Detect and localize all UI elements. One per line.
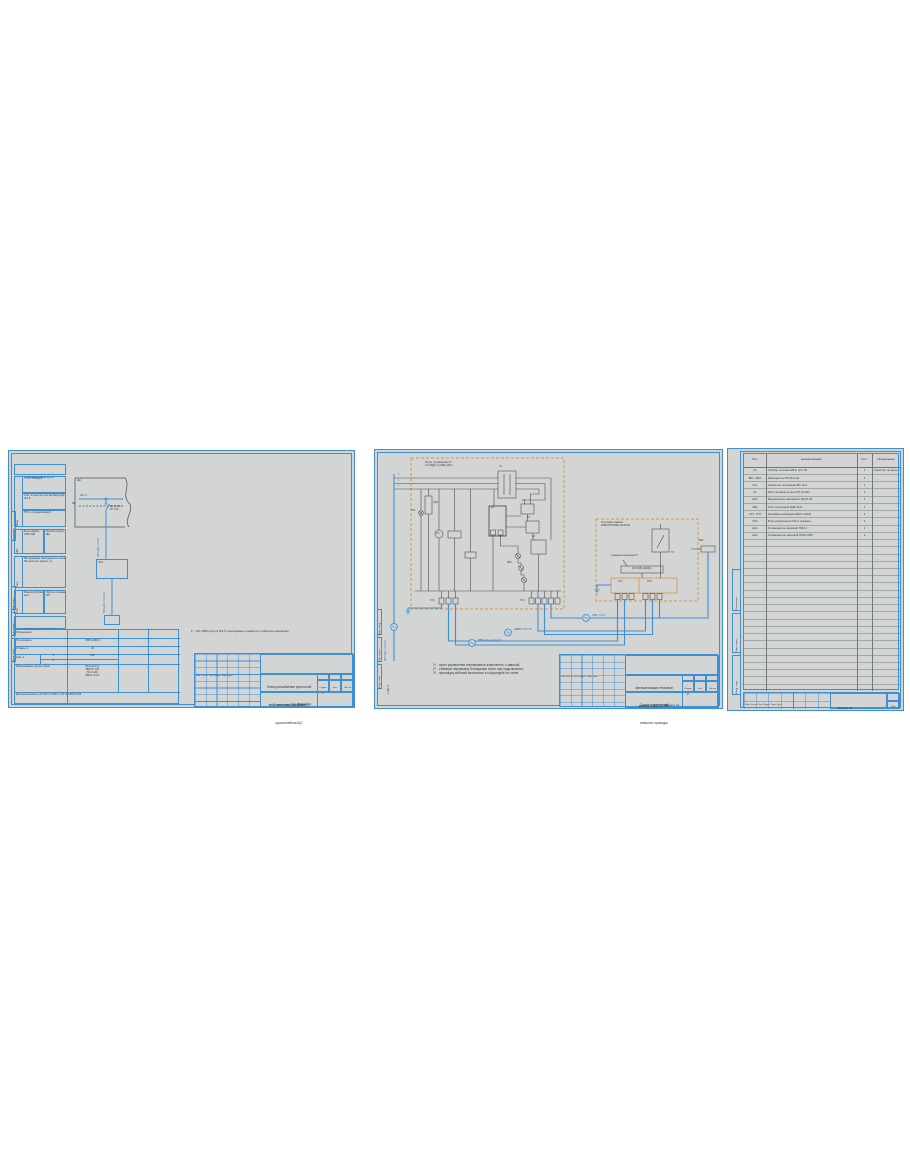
sheet-wiring-connections: Взам. инв. № Подп. и дата Инв. № подл. — [374, 449, 723, 709]
title-block-top-cell — [260, 654, 354, 674]
stack-row1-cell: Учёт эл.энергии счётчик Меркурий 201.5 — [22, 493, 66, 510]
power-lines — [79, 498, 123, 615]
stack-row2-cell: Реле напряж. УЗМ-51М — [22, 529, 44, 554]
parts-row: QF1Выключатель автоматич. ВА47-291 — [744, 497, 900, 504]
sheet-header: Лист — [887, 693, 900, 701]
org-cell — [682, 692, 719, 708]
stage-value: Р — [682, 681, 694, 692]
riser-destination: к ЩС 3 — [387, 670, 390, 694]
meter-label: PV — [436, 533, 439, 536]
jumper-note: съёмная перемычка 2* — [611, 555, 638, 558]
cable2-label: ВВГнг(А)-LS 3х2,5 — [104, 582, 107, 613]
panel-outline — [75, 478, 131, 527]
side-stamp-box: Инв. № подл. — [377, 664, 382, 689]
load-terminal-box — [104, 615, 120, 625]
stage-value: Р — [317, 680, 329, 692]
row-label: Наименование группы, Рном — [16, 666, 66, 669]
note-line: 3* - прокладку кабелей выполнить в гофро… — [433, 672, 561, 676]
side-stamp-box: Подп. и дата — [732, 613, 741, 653]
breaker-label: QF1 — [434, 502, 439, 505]
title-block: Изм. Кол.уч. Лист №док. Подп. Дата Автом… — [559, 654, 718, 707]
button-label: SB1 — [507, 562, 512, 565]
sheet-power-single-line: Согласовано Взам. инв. № Подп. и дата Ин… — [8, 450, 355, 708]
parts-row: ВК1...ВК4Извещатель ИП 212-1414 — [744, 476, 900, 483]
parts-row: НА1Оповещатель звуковой ПКИ-11 — [744, 526, 900, 533]
terminal-strip-label: ХТ2 — [520, 600, 525, 603]
parts-row: HL1Указатель положения ВС-10-11 — [744, 483, 900, 490]
format-label: Формат А4 — [838, 707, 852, 710]
dist-table-header: Распределительная сеть — [14, 616, 66, 629]
dark-wires — [394, 471, 715, 604]
stack-row1-cell: ТП-1 с.1 ввод А — [22, 476, 66, 493]
transformer-label: Т1 — [499, 466, 502, 469]
sheet-parts-list: Согласовано Подп. и дата Инв. № подл. По… — [727, 448, 904, 711]
org-cell — [317, 692, 354, 708]
controller-label: А1 — [491, 507, 494, 510]
riser-cable-label: ВВГнг(А)-LS 3х1,5 — [385, 632, 388, 661]
curtain-terminal-group: ХТ1 — [618, 581, 623, 584]
col-header-pos: Поз. — [744, 458, 766, 461]
row-label: Iном, А — [16, 657, 39, 660]
parts-row: SB1Пост кнопочный КМЕ 41111 — [744, 505, 900, 512]
breaker-label: ВА 47-29 1Р С25 — [110, 506, 120, 512]
control-unit-label: БУ-КЭВ (СЕ291) — [622, 568, 662, 571]
side-stamp-box: Инв. № подл. — [732, 655, 741, 695]
row-value: 25 — [67, 648, 118, 651]
sheet-value — [329, 680, 341, 692]
cable-run-label: ПВС 7х1,5 — [592, 614, 605, 617]
sheet-value — [694, 681, 706, 692]
title-block-top-cell — [625, 655, 719, 675]
side-stamp-box: Согласовано — [732, 569, 741, 611]
stack-row1-cell: ТП-1 с.2 резерв ввод Б — [22, 510, 66, 527]
sheet1-note: 1* - ЩС, ВВГнг(А)-LS 3х2,5 прокладывать … — [191, 630, 326, 633]
stack-header: Наименование щита — [14, 464, 66, 475]
cable-run-label: ШВВП 2х0,75 — [514, 628, 531, 631]
format-label: Формат А3 — [297, 703, 311, 706]
parts-row: К1Реле промежуточное РП-21-0031 — [744, 490, 900, 497]
dist-table: Обозначение - Тип аппарата ПВР 2/25/23 У… — [14, 629, 179, 704]
table-line — [148, 630, 149, 692]
side-stamp-box: Взам. инв. № — [377, 609, 382, 635]
row-label: Обозначение — [16, 632, 66, 635]
air-curtain-label: Тепловая завеса КЭВ-6П1152Е (021/19) — [601, 521, 651, 527]
relay-label: К2 — [527, 517, 530, 520]
side-stamp-box: Подп. и дата — [377, 637, 382, 662]
parts-row: А1Прибор «Сигнал-20П» исп. 021Смонтир. н… — [744, 468, 900, 475]
bus-number: 1 — [398, 474, 399, 476]
curtain-terminal-group: НТС — [647, 581, 652, 584]
lamp-label: HL1 — [411, 510, 416, 513]
notes-block: 1* - пульт управления поставляется компл… — [433, 664, 561, 676]
junction-box: ЯУ1 — [96, 559, 128, 579]
mini-title-strip: Изм. Кол.уч. Лист №док. Подп. Дата Лист — [743, 692, 899, 708]
cable1-label: ВВГнг(А)-LS 5х6 — [98, 530, 101, 557]
bus-label: ЩС 3 — [80, 494, 87, 497]
bus-number: 2 — [398, 480, 399, 482]
heater-label: ЕК1* — [699, 540, 705, 543]
row-value: ПВР 2/25/23 — [67, 640, 118, 643]
relay-label: К3 — [532, 536, 535, 539]
stack-row4-cell: Прочие силовые ЭП — [44, 590, 66, 614]
panel-corner-label: ЩС — [77, 480, 81, 483]
terminal-strip-label: ХТ1 — [430, 600, 435, 603]
title-block: Изм. Кол.уч. Лист №док. Подп. Дата Элект… — [194, 653, 353, 707]
revision-row-labels: Изм. Кол.уч. Лист №док. Подп. Дата — [196, 675, 260, 677]
parts-table: Поз. Наименование Кол. Примечание А1Приб… — [743, 453, 899, 690]
equipment-outlines — [411, 458, 698, 609]
bus-number: 3 — [398, 485, 399, 487]
drawing-canvas: { "colors":{"sheet_bg":"#d3d4d4","frame_… — [0, 0, 910, 1155]
parts-row: ХТ1, ХТ2Клеммник наборный ЗНИ-4 (DIN)2 — [744, 512, 900, 519]
stack-row2-cell: Розетки группы ЩС — [44, 529, 66, 554]
revision-row-labels: Изм. Кол.уч. Лист №док. Подп. Дата — [745, 704, 830, 706]
revision-grid — [195, 654, 260, 706]
stack-row3-cell: РЕ-проводник присоединить к шине РЕ щита… — [22, 556, 66, 588]
revision-row-labels: Изм. Кол.уч. Лист №док. Подп. Дата — [561, 676, 625, 678]
sub-label: 1 — [40, 655, 67, 658]
cable-run-label: ВВГнг(А)-LS 3х1,5 — [478, 639, 501, 642]
row-value: - — [67, 632, 118, 635]
sheets-value — [341, 680, 354, 692]
control-panel-label: Пульт управления 1* тип ПДУ-3 (СВН-302) — [425, 461, 471, 467]
pe-label: PE — [72, 503, 75, 506]
parts-row: XS1Блок управления АЧС-2 «Гранат»1 — [744, 519, 900, 526]
sheets-value — [706, 681, 719, 692]
row-value: 25А — [67, 655, 118, 658]
row-value: Вентилятор ВЕНТС 150 N=1,5 кВт ВВГнг 3х2… — [67, 666, 118, 678]
sheet-value — [887, 701, 900, 709]
revision-grid — [744, 693, 830, 709]
doc-title-cell: Электроснабжение приточной вент. системы… — [260, 674, 318, 692]
thermal-relay-label: ТЗ — [671, 552, 674, 555]
col-header-qty: Кол. — [857, 458, 872, 461]
col-header-note: Примечание — [872, 458, 900, 461]
table-line — [118, 630, 119, 692]
row-label: Уставка, А — [16, 648, 66, 651]
table-note: Монтаж выполнить по ГОСТ Р 50571, СП 76.… — [16, 694, 176, 697]
row-label: Тип аппарата — [16, 640, 66, 643]
doc-title-cell: Автоматизация тепловой завесы КЭВ (021/1… — [625, 675, 683, 692]
sub-label: 2 — [40, 660, 67, 663]
parts-row: НА2Оповещатель световой ПКИ-СП121 — [744, 533, 900, 540]
relay-label: К1 — [522, 500, 525, 503]
format-label: Формат А3 — [665, 704, 679, 707]
col-header-name: Наименование — [767, 458, 856, 461]
revision-grid — [560, 655, 625, 706]
stack-row4-cell: Розетки рабочих мест — [22, 590, 44, 614]
row-value: - — [67, 660, 118, 663]
